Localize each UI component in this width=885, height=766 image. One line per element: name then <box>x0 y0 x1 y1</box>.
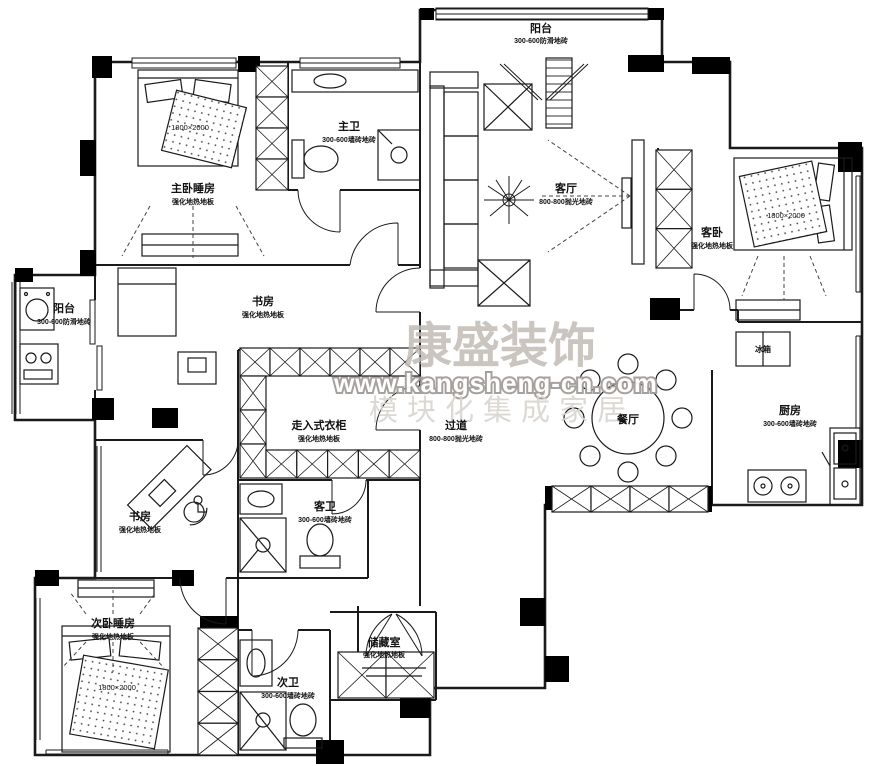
guest-bath-toilet <box>300 524 340 568</box>
guest-console <box>736 300 800 320</box>
label-living: 客厅 <box>554 181 577 195</box>
label-storage: 储藏室 <box>368 635 401 649</box>
label-dining: 餐厅 <box>616 412 639 426</box>
closet-cabinets-bottom <box>266 450 420 478</box>
label-guest-bedroom: 客卧 <box>700 225 723 239</box>
label-guest-bedroom-finish: 强化地热地板 <box>691 241 734 250</box>
label-balcony-left: 阳台 <box>53 301 75 315</box>
label-living-finish: 800-800抛光地砖 <box>539 197 593 206</box>
study-lower-desk <box>128 446 232 550</box>
floor-plan-canvas: 康盛装饰 www.kangsheng-cn.com 模块化集成家居 阳台 300… <box>0 0 885 766</box>
guest-bath-shower <box>240 518 286 572</box>
living-sofa <box>430 72 478 288</box>
master-bed <box>138 70 246 168</box>
watermark-url: www.kangsheng-cn.com <box>333 368 658 398</box>
sliding-door-left-balcony <box>90 300 102 390</box>
living-runner <box>546 58 572 128</box>
window-balcony-left <box>12 282 20 414</box>
floor-plan: 康盛装饰 www.kangsheng-cn.com 模块化集成家居 阳台 300… <box>0 0 885 766</box>
window-study-lower-left <box>97 446 101 572</box>
label-study-upper-finish: 强化地热地板 <box>242 310 285 319</box>
guest-bath-vanity <box>240 484 282 514</box>
label-balcony-top: 阳台 <box>530 21 552 35</box>
kitchen-stove <box>748 470 806 502</box>
study-upper-daybed <box>118 268 176 336</box>
second-bath-shower <box>240 692 286 750</box>
label-hallway: 过道 <box>445 418 467 432</box>
label-study-upper: 书房 <box>252 294 274 308</box>
label-second-bedroom-finish: 强化地热地板 <box>92 632 135 641</box>
watermark-title: 康盛装饰 <box>404 320 596 373</box>
window-master-bath-top <box>300 58 400 68</box>
window-second-bedroom-left <box>36 598 40 740</box>
guest-bed <box>734 158 852 250</box>
dining-bench-cabinets <box>552 486 708 512</box>
second-wardrobe <box>198 628 238 755</box>
label-storage-finish: 强化地热地板 <box>363 650 406 659</box>
label-second-bath: 次卫 <box>277 675 299 689</box>
second-tv-console <box>78 580 154 597</box>
label-kitchen-finish: 300-600墙砖地砖 <box>763 419 817 428</box>
label-guest-bath: 客卫 <box>313 499 336 513</box>
balcony-left-sink <box>20 344 58 384</box>
second-bath-vanity <box>240 640 272 686</box>
label-study-lower: 书房 <box>129 509 151 523</box>
master-dresser <box>142 234 238 256</box>
master-bath-shower <box>378 130 420 180</box>
label-hallway-finish: 800-800抛光地砖 <box>429 434 483 443</box>
master-wardrobe <box>256 66 288 190</box>
master-bath-vanity <box>292 70 418 92</box>
label-balcony-top-finish: 300-600防滑地砖 <box>514 36 568 45</box>
living-tv-console <box>622 140 644 264</box>
guest-wardrobe <box>656 150 692 268</box>
label-second-bed-size: 1800×2000 <box>98 683 136 692</box>
label-closet: 走入式衣柜 <box>291 418 347 432</box>
living-plant <box>484 176 534 224</box>
label-master-bedroom-finish: 强化地热地板 <box>172 197 215 206</box>
label-kitchen: 厨房 <box>779 403 801 417</box>
label-guest-bed-size: 1800×2000 <box>767 211 805 220</box>
living-side-table-bottom <box>478 260 530 306</box>
label-master-bath-finish: 300-600墙砖地砖 <box>322 135 376 144</box>
label-second-bedroom: 次卧睡房 <box>91 616 135 630</box>
label-second-bath-finish: 300-600墙砖地砖 <box>261 691 315 700</box>
label-closet-finish: 强化地热地板 <box>298 434 341 443</box>
label-master-bath: 主卫 <box>338 119 360 133</box>
window-balcony-top <box>436 8 648 20</box>
master-bath-toilet <box>292 140 338 178</box>
label-fridge: 冰箱 <box>755 344 771 354</box>
label-master-bed-size: 1800×2000 <box>171 123 209 132</box>
watermark: 康盛装饰 www.kangsheng-cn.com 模块化集成家居 <box>333 320 658 427</box>
study-upper-desk <box>178 352 216 384</box>
label-master-bedroom: 主卧睡房 <box>171 181 215 195</box>
living-side-table-top <box>484 84 532 130</box>
label-guest-bath-finish: 300-600墙砖地砖 <box>298 515 352 524</box>
label-study-lower-finish: 强化地热地板 <box>119 525 162 534</box>
window-master-top <box>132 58 236 68</box>
label-balcony-left-finish: 300-600防滑地砖 <box>37 317 91 326</box>
closet-cabinets-left <box>240 376 266 478</box>
watermark-slogan: 模块化集成家居 <box>369 394 635 427</box>
